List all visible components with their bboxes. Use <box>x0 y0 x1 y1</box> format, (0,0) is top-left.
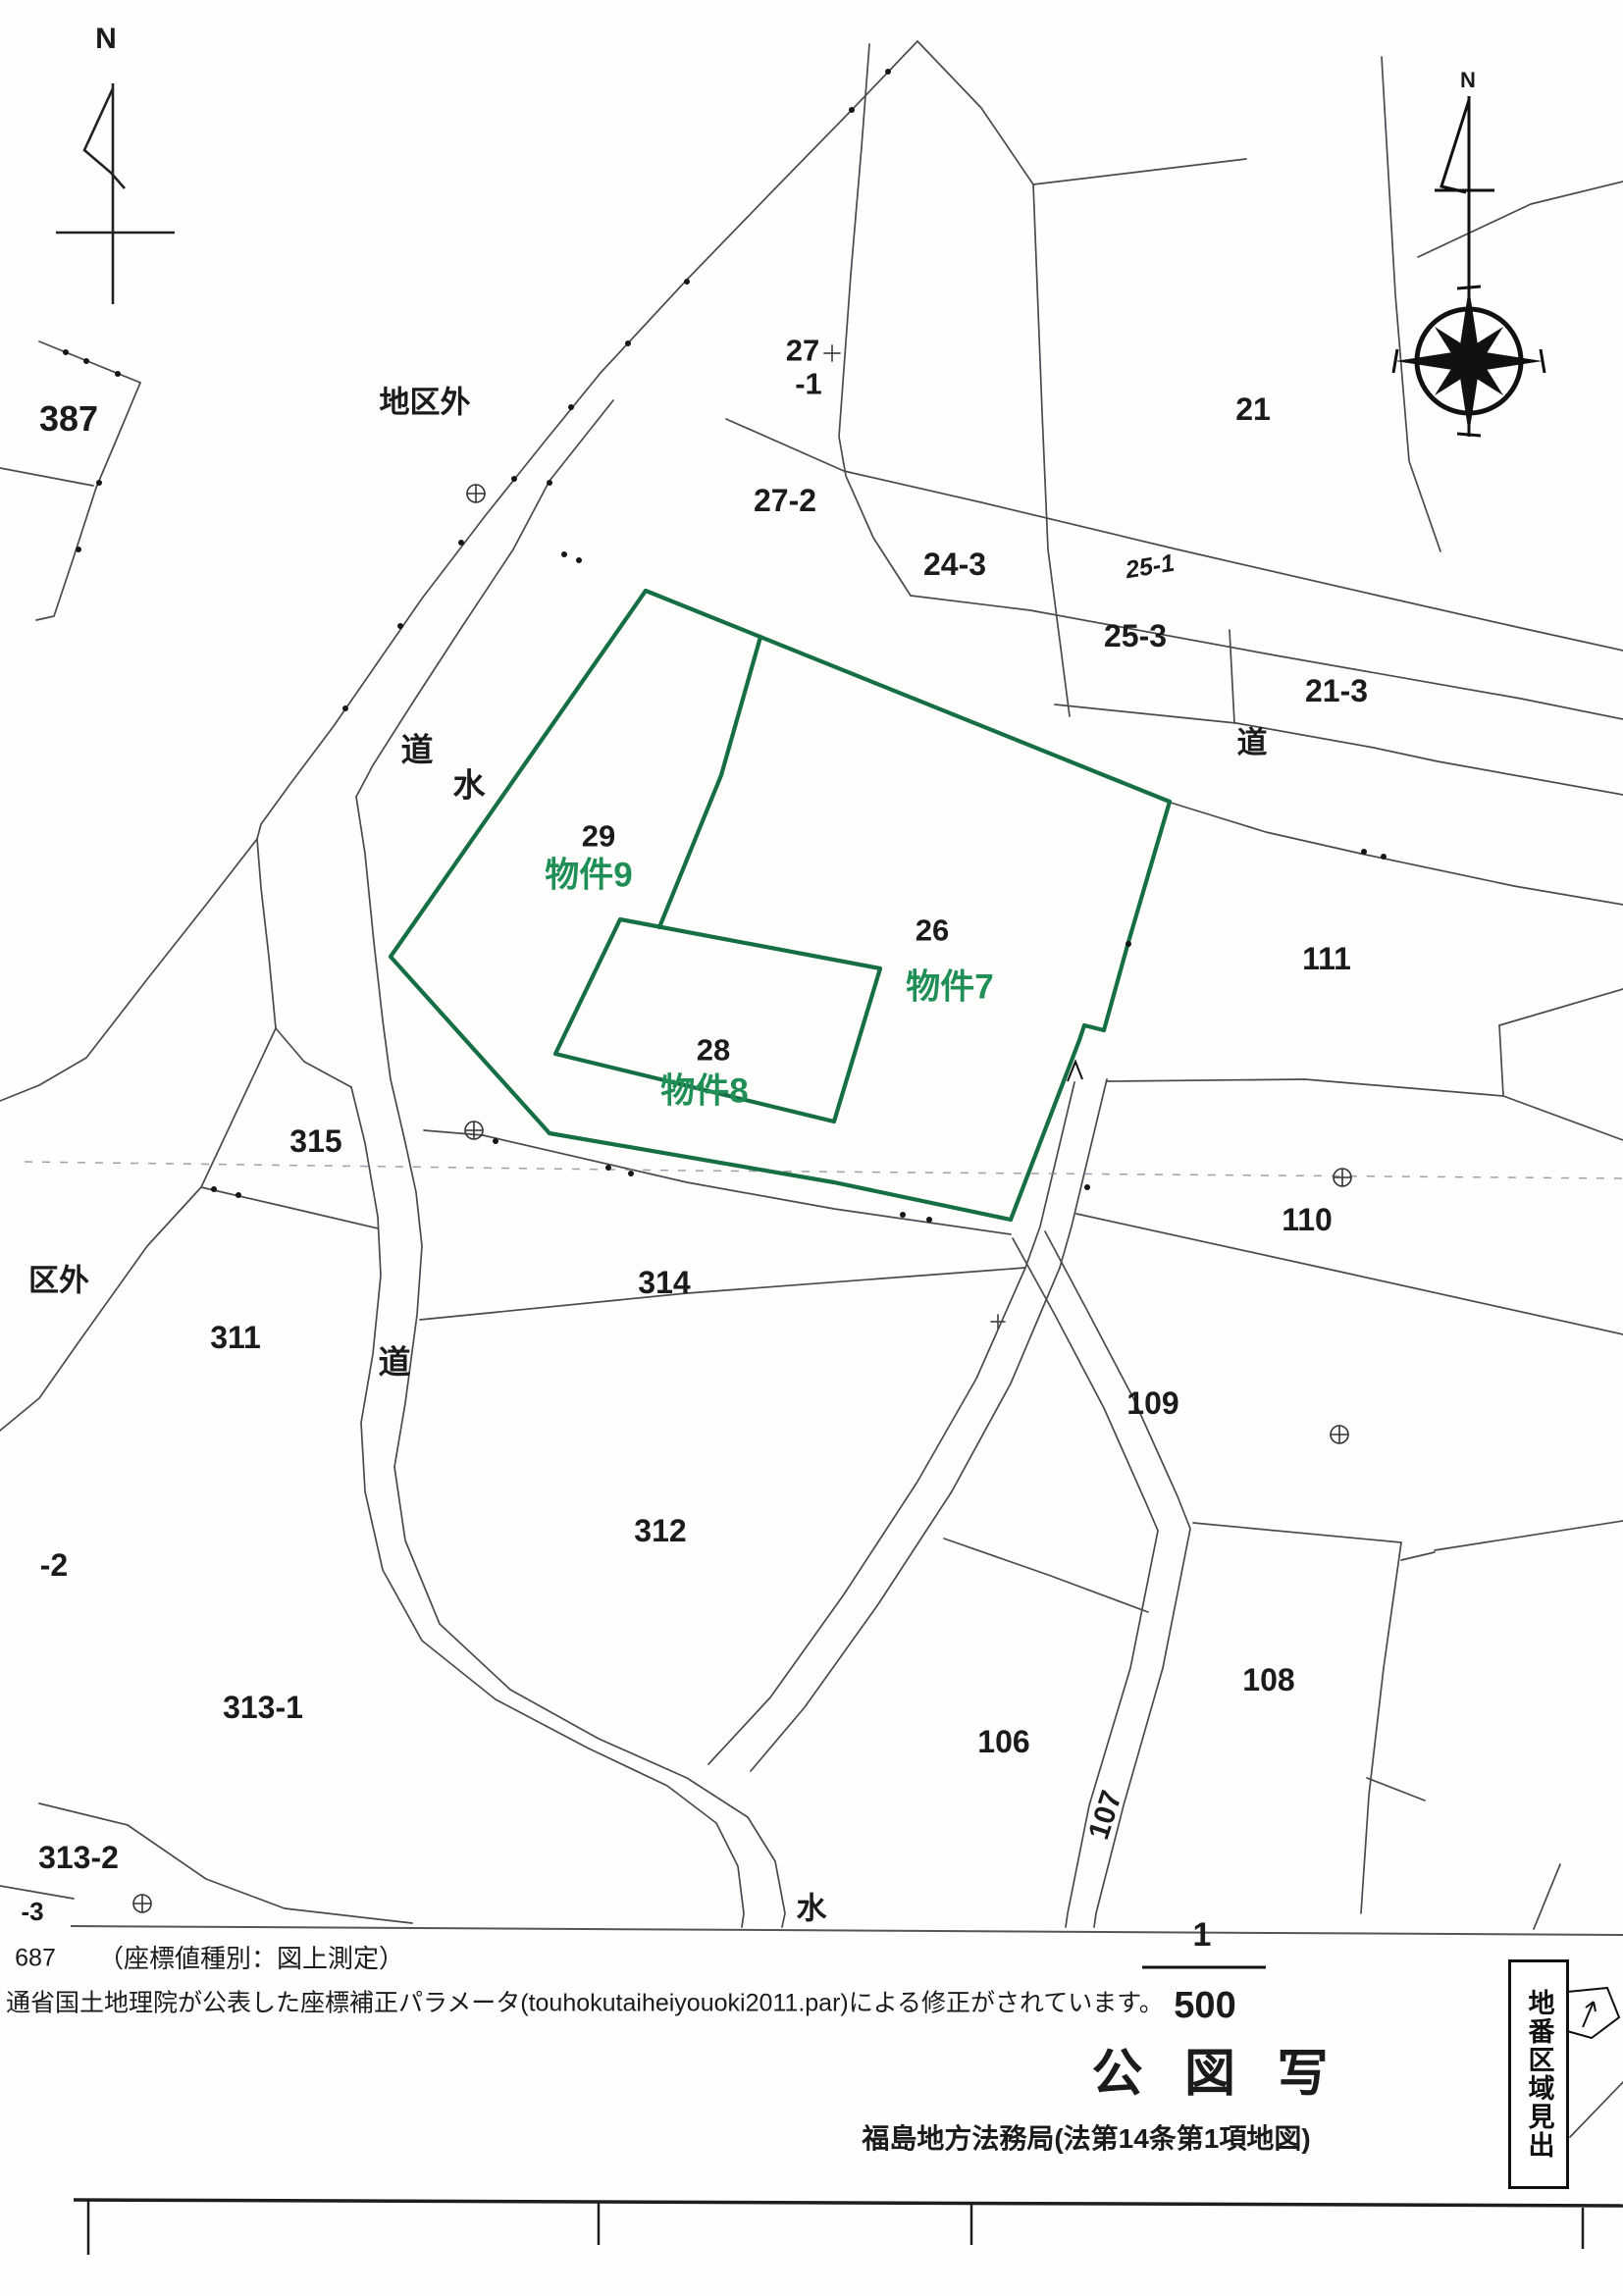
parcel-label-110: 110 <box>1282 1204 1333 1235</box>
parcel-label-minus3: -3 <box>21 1899 43 1924</box>
side-tab-label: 地番区域見出 <box>1526 1989 1552 2160</box>
sheet-number: 687 <box>15 1947 56 1971</box>
road-label-west: 道 <box>379 1346 411 1379</box>
scale-denominator: 500 <box>1174 1987 1235 2024</box>
parcel-label-27-1: -1 <box>795 369 822 399</box>
road-label-northeast: 道 <box>1237 728 1268 758</box>
parcel-label-106: 106 <box>977 1726 1029 1757</box>
parcel-label-27: 27 <box>786 336 819 366</box>
parcel-26-bottom-edge <box>550 1133 1011 1220</box>
parcel-29-26-divider <box>659 637 760 927</box>
north-label-right: N <box>1460 70 1476 91</box>
parcel-label-29: 29 <box>582 821 615 852</box>
highlighted-parcel-outlines <box>391 591 1170 1220</box>
parcel-label-313-1: 313-1 <box>223 1692 303 1723</box>
north-label-left: N <box>95 25 117 54</box>
document-title: 公 図 写 <box>1092 2049 1342 2100</box>
water-label-northwest: 水 <box>453 769 486 802</box>
road-label-northwest: 道 <box>401 734 434 766</box>
survey-grid-dotted-line <box>25 1162 1623 1178</box>
legal-affairs-bureau: 福島地方法務局(法第14条第1項地図) <box>862 2125 1310 2153</box>
property-label-bukken8: 物件8 <box>660 1074 748 1109</box>
footer-rules <box>71 1926 1623 2255</box>
parcel-29-south-west-edge <box>391 957 550 1133</box>
scale-numerator: 1 <box>1193 1918 1212 1952</box>
parcel-label-314: 314 <box>638 1267 690 1298</box>
parcel-label-27-2: 27-2 <box>754 485 816 516</box>
side-tab-box: 地番区域見出 <box>1508 1959 1569 2189</box>
north-arrow-left <box>56 83 175 304</box>
coordinate-type-note: （座標値種別：図上測定） <box>98 1946 404 1971</box>
parcel-label-25-3: 25-3 <box>1104 620 1167 652</box>
water-label-south: 水 <box>797 1894 827 1924</box>
parcel-label-315: 315 <box>289 1125 341 1157</box>
area-label-kugai: 区外 <box>28 1266 89 1296</box>
parcel-label-109: 109 <box>1126 1387 1178 1419</box>
parcel-label-312: 312 <box>634 1515 686 1546</box>
parcel-label-111: 111 <box>1302 943 1351 974</box>
parcel-label-minus2: -2 <box>40 1549 68 1581</box>
parcel-label-24-3: 24-3 <box>923 548 986 580</box>
side-tab-flag <box>1567 1988 1619 2038</box>
parcel-26-east-edge <box>1011 802 1170 1220</box>
property-label-bukken7: 物件7 <box>906 970 993 1005</box>
parcel-label-26: 26 <box>916 915 949 946</box>
property-label-bukken9: 物件9 <box>545 859 632 893</box>
parcel-label-21: 21 <box>1235 393 1271 425</box>
parcel-label-28: 28 <box>697 1035 730 1066</box>
parcel-label-108: 108 <box>1242 1664 1294 1696</box>
correction-note: 通省国土地理院が公表した座標補正パラメータ(touhokutaiheiyouok… <box>6 1992 1164 2016</box>
compass-rose <box>1393 96 1544 437</box>
cadastral-map-page: N N 387 地区外 27 -1 21 27-2 24-3 25-1 25-3… <box>0 0 1623 2296</box>
parcel-label-387: 387 <box>39 401 98 437</box>
parcel-label-313-2: 313-2 <box>38 1842 119 1873</box>
parcel-29-west-edge <box>391 591 646 957</box>
parcel-label-21-3: 21-3 <box>1305 675 1368 706</box>
area-label-chikugai: 地区外 <box>380 388 471 418</box>
parcel-label-311: 311 <box>210 1322 261 1353</box>
